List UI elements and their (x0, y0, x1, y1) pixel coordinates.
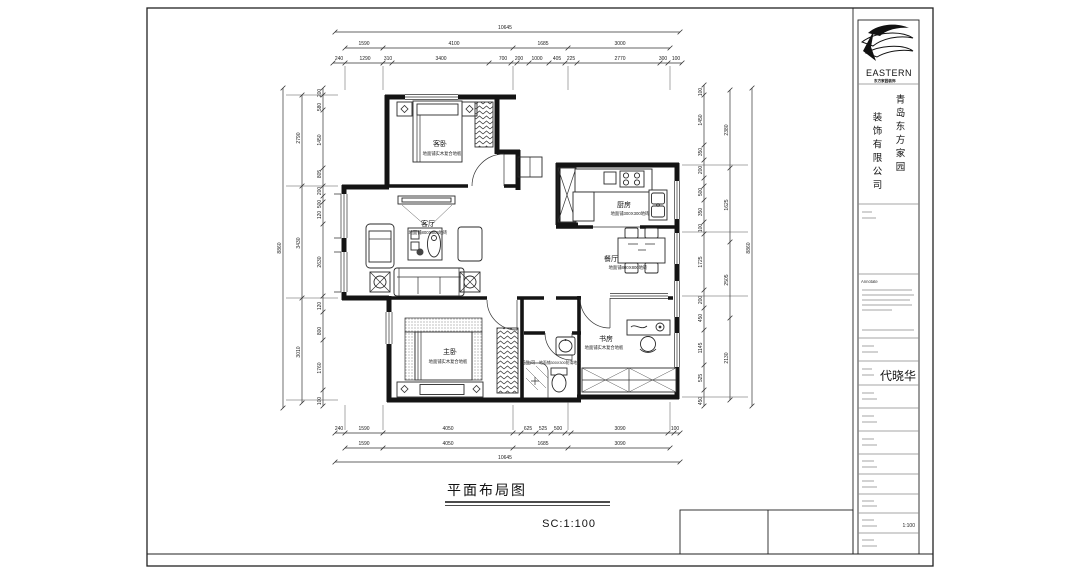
master-window (385, 312, 394, 344)
guest-bedroom-door (472, 154, 504, 186)
dim: 625 (524, 426, 533, 432)
dim: 500 (554, 426, 563, 432)
dim: 1760 (317, 362, 323, 373)
dim-right-total: 8860 (746, 242, 752, 253)
company-logo: EASTERN 东方家园装饰 (862, 25, 913, 83)
drawing-sheet: 客卧 地面铺实木复合地板 客厅 地面铺800X800地砖 厨房 地面铺300X3… (0, 0, 1074, 576)
dim: 3090 (614, 426, 625, 432)
drawing-title: 平面布局图 (447, 482, 527, 498)
plant (370, 272, 390, 292)
bench (397, 382, 483, 397)
bed (415, 332, 472, 380)
dim: 120 (317, 211, 323, 220)
room-note-guest-bedroom: 地面铺实木复合地板 (423, 150, 462, 157)
dim: 1685 (537, 441, 548, 447)
dim: 450 (698, 397, 704, 406)
dim: 3430 (296, 237, 302, 248)
dim: 200 (698, 166, 704, 175)
room-label-bathroom: 卫生间 (521, 359, 535, 366)
headboard (405, 318, 482, 332)
dim: 1590 (358, 426, 369, 432)
room-label-guest-bedroom: 客卧 (433, 139, 447, 148)
dim: 240 (335, 426, 344, 432)
shower (524, 363, 548, 398)
dim: 350 (698, 208, 704, 217)
designer-signature: 代晓华 (880, 369, 916, 383)
company-name: 青岛东方家园 装饰有限公司 (871, 93, 906, 193)
living-furniture (366, 196, 482, 296)
company-line1: 青岛东方家园 (894, 93, 906, 175)
wardrobe (497, 328, 518, 393)
dim: 1145 (698, 342, 704, 353)
dim: 4050 (442, 441, 453, 447)
drawing-scale: SC:1:100 (542, 518, 596, 530)
dim: 4050 (442, 426, 453, 432)
dim: 1590 (358, 41, 369, 47)
dim: 405 (553, 56, 562, 62)
desk-chair (640, 337, 656, 353)
dim: 100 (671, 426, 680, 432)
dim: 1625 (724, 199, 730, 210)
dim: 2770 (614, 56, 625, 62)
master-furniture (397, 318, 518, 397)
dim: 200 (317, 187, 323, 196)
sofa (394, 268, 464, 296)
room-note-kitchen: 地面铺300X300地砖 (611, 210, 650, 217)
dim: 500 (698, 188, 704, 197)
study-door (580, 298, 610, 328)
dim: 525 (698, 374, 704, 383)
revision-box (680, 510, 853, 554)
dim: 2790 (296, 132, 302, 143)
annotate-label: Annotate (861, 279, 878, 284)
dim: 2630 (317, 256, 323, 267)
dim: 3400 (435, 56, 446, 62)
room-note-master: 地面铺实木复合地板 (429, 358, 468, 365)
dim: 805 (317, 170, 323, 179)
wardrobe (475, 102, 493, 147)
dim: 350 (698, 148, 704, 157)
dim: 3010 (296, 346, 302, 357)
dim: 300 (659, 56, 668, 62)
toilet (551, 368, 567, 392)
bath-sink (556, 337, 575, 355)
dim: 120 (317, 302, 323, 311)
dim: 1450 (698, 114, 704, 125)
bowl-icon (417, 249, 424, 256)
dim: 100 (698, 224, 704, 233)
dim: 3090 (614, 441, 625, 447)
dim: 700 (499, 56, 508, 62)
bookshelf (582, 368, 676, 392)
dim: 1450 (317, 134, 323, 145)
side-table (458, 227, 482, 261)
bathroom-furniture (524, 337, 575, 398)
room-label-study: 书房 (599, 334, 613, 343)
brand-sub: 东方家园装饰 (874, 78, 896, 83)
dim: 500 (317, 200, 323, 209)
dim: 100 (672, 56, 681, 62)
dim-bottom-total: 10645 (498, 455, 512, 461)
fridge (573, 192, 594, 221)
dimensions-left: 8860 2790 3430 3010 200 580 1450 805 200… (277, 86, 338, 411)
floor-plan-canvas: 客卧 地面铺实木复合地板 客厅 地面铺800X800地砖 厨房 地面铺300X3… (0, 0, 1074, 576)
living-window-lower (334, 252, 349, 292)
room-label-living: 客厅 (421, 219, 435, 228)
dim: 525 (539, 426, 548, 432)
desk (627, 320, 670, 335)
room-note-living: 地面铺800X800地砖 (409, 229, 448, 236)
dim: 100 (317, 397, 323, 406)
dim: 800 (317, 327, 323, 336)
dimensions-right: 100 1450 350 200 500 350 100 1725 200 45… (682, 83, 754, 409)
chair (645, 228, 658, 238)
company-line2: 装饰有限公司 (871, 111, 883, 193)
dimensions-bottom: 240 1590 4050 625 525 500 3090 100 1590 … (333, 402, 683, 464)
dim: 200 (698, 296, 704, 305)
titleblock-scale-value: 1:100 (902, 523, 915, 529)
dim-top-total: 10645 (498, 25, 512, 31)
dim: 2130 (724, 352, 730, 363)
dim: 240 (335, 56, 344, 62)
dining-table (618, 238, 665, 263)
room-label-master: 主卧 (443, 347, 457, 356)
master-door (487, 300, 517, 330)
chair (625, 228, 638, 238)
dim-left-total: 8860 (277, 242, 283, 253)
dim: 1000 (531, 56, 542, 62)
room-note-study: 地面铺实木复合地板 (585, 344, 624, 351)
dim: 1725 (698, 256, 704, 267)
dimensions-top: 10645 1590 4100 1685 3000 240 1290 310 3… (331, 25, 685, 90)
armchair (366, 224, 394, 268)
dim: 100 (698, 88, 704, 97)
sink (649, 190, 667, 220)
title-block: EASTERN 东方家园装饰 青岛东方家园 装饰有限公司 Annotate 代晓… (858, 20, 919, 554)
study-furniture (582, 320, 676, 392)
stove (620, 171, 644, 187)
room-note-dining: 地面铺800X800地砖 (609, 264, 648, 271)
living-window-upper (334, 194, 349, 238)
dim: 2380 (724, 124, 730, 135)
dim: 580 (317, 103, 323, 112)
dim: 4100 (448, 41, 459, 47)
dim: 225 (567, 56, 576, 62)
room-label-kitchen: 厨房 (617, 200, 631, 209)
dim: 1590 (358, 441, 369, 447)
sheet-border (147, 8, 933, 566)
brand-name: EASTERN (866, 68, 912, 78)
dim: 2505 (724, 274, 730, 285)
dim: 3000 (614, 41, 625, 47)
guest-bedroom-window (405, 93, 458, 101)
room-note-bathroom: 地面铺300X300防滑地砖 (539, 360, 581, 365)
dim: 1685 (537, 41, 548, 47)
dim: 1290 (359, 56, 370, 62)
room-label-dining: 餐厅 (604, 254, 618, 263)
drawing-title-group: 平面布局图 SC:1:100 (445, 482, 610, 530)
dim: 450 (698, 314, 704, 323)
study-north-window (610, 292, 668, 300)
